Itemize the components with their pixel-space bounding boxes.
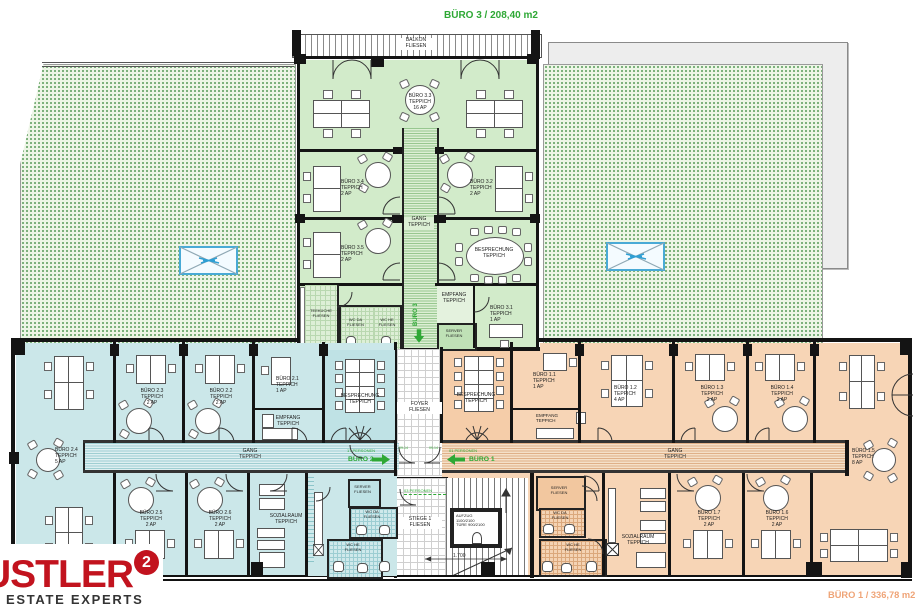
svg-text:1.700: 1.700	[453, 553, 466, 559]
